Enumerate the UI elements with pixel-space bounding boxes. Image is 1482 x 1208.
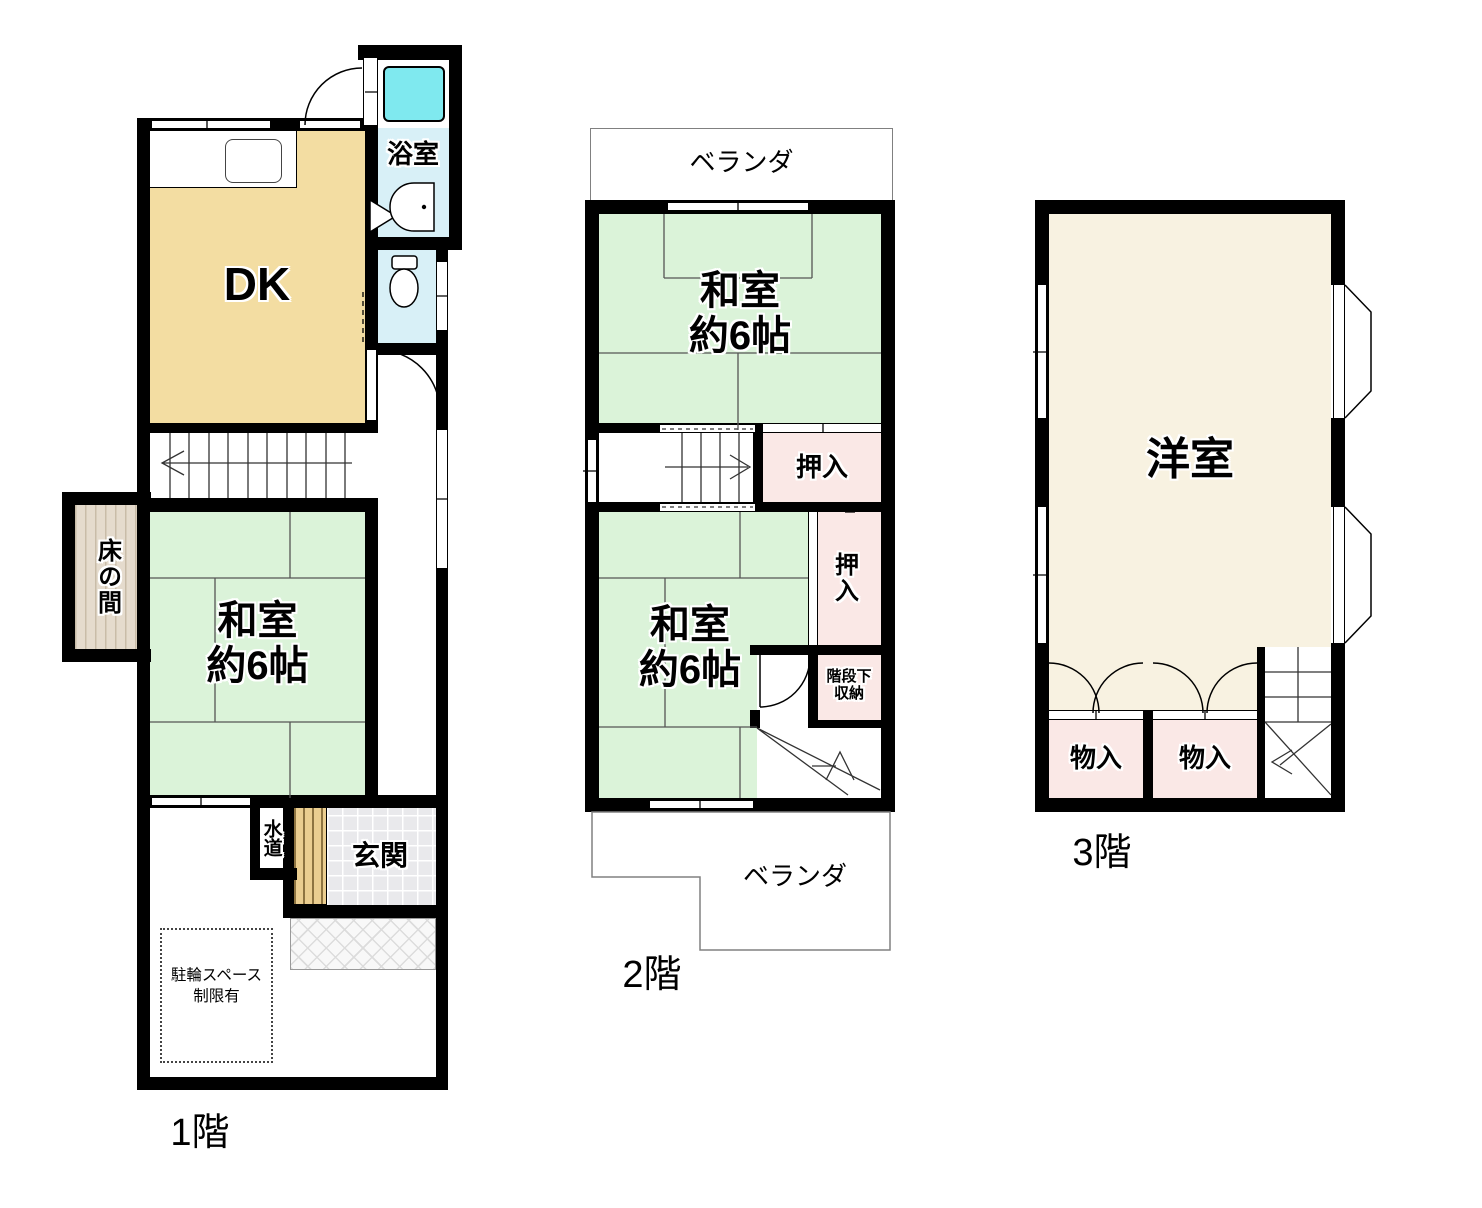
label-monoire-b: 物入 — [1153, 740, 1257, 778]
room-toilet — [378, 250, 436, 345]
wall — [808, 720, 881, 728]
wall — [753, 423, 763, 512]
window — [587, 440, 597, 502]
label-washitsu-1f-line1: 和室 — [218, 599, 298, 644]
wall — [137, 1077, 441, 1090]
label-washitsu-1f: 和室 約6帖 — [150, 588, 365, 700]
closet-door — [1153, 710, 1257, 720]
wall — [1035, 798, 1345, 812]
fusuma-door — [808, 512, 818, 645]
label-suido: 水道 — [257, 810, 285, 866]
label-bicycle-line2: 制限有 — [193, 987, 240, 1008]
wall — [750, 710, 760, 728]
label-washitsu-2f-s-line1: 和室 — [650, 603, 730, 648]
wall — [1331, 643, 1345, 812]
label-bicycle-line1: 駐輪スペース — [171, 966, 262, 987]
label-oshiire-a-text: 押入 — [796, 453, 848, 482]
stair-opening — [660, 425, 755, 432]
label-washitsu-2f-s-line2: 約6帖 — [639, 648, 741, 693]
label-bicycle-space: 駐輪スペース 制限有 — [160, 955, 273, 1019]
entrance-porch — [290, 918, 436, 970]
wall — [365, 512, 378, 808]
label-kaidanshita-line1: 階段下 — [826, 669, 871, 686]
tokonoma-wall — [62, 492, 75, 662]
label-washitsu-2f-south: 和室 約6帖 — [599, 592, 781, 704]
label-veranda-top-text: ベランダ — [689, 148, 793, 177]
label-tokonoma: 床の間 — [88, 513, 124, 641]
entry-step — [293, 800, 327, 905]
floor1-label-text: 1階 — [170, 1112, 229, 1155]
label-bath: 浴室 — [376, 140, 450, 170]
floor3-label: 3階 — [1042, 828, 1162, 878]
wall — [365, 237, 462, 250]
label-washitsu-2f-north: 和室 約6帖 — [599, 258, 881, 370]
label-monoire-a: 物入 — [1049, 740, 1143, 778]
floor2-label: 2階 — [592, 950, 712, 1000]
label-bath-text: 浴室 — [387, 140, 439, 169]
wall — [137, 498, 378, 512]
window — [152, 120, 270, 129]
sliding-door — [152, 797, 250, 806]
bay-window-opening — [1333, 285, 1345, 418]
winder-stairs-2f — [757, 728, 880, 795]
label-kaidanshita: 階段下 収納 — [810, 662, 888, 710]
window — [1037, 507, 1047, 643]
label-washitsu-2f-n-line2: 約6帖 — [689, 314, 791, 359]
bath-door-gap — [367, 350, 376, 420]
wall — [1331, 200, 1345, 285]
wall — [1035, 200, 1345, 214]
label-suido-text: 水道 — [260, 819, 281, 857]
label-washitsu-1f-line2: 約6帖 — [206, 644, 308, 689]
stairs-2f — [662, 429, 753, 507]
label-yoshitsu: 洋室 — [1049, 428, 1331, 492]
floor1-label: 1階 — [140, 1108, 260, 1158]
label-dk-text: DK — [224, 259, 290, 311]
label-genkan: 玄関 — [330, 838, 430, 874]
label-washitsu-2f-n-line1: 和室 — [700, 269, 780, 314]
door-sill — [300, 120, 360, 129]
label-dk: DK — [187, 253, 327, 317]
wall — [881, 200, 895, 812]
label-oshiire-b-text: 押入 — [830, 552, 857, 604]
fusuma-door — [763, 423, 881, 433]
wall — [137, 423, 378, 433]
floorplan-canvas: DK 浴室 床の間 和室 約6帖 水道 玄関 駐輪スペース 制限有 1階 ベラン… — [0, 0, 1482, 1208]
bathtub — [383, 66, 445, 122]
label-oshiire-b: 押入 — [826, 528, 860, 628]
label-monoire-a-text: 物入 — [1070, 744, 1122, 773]
closet-door — [1049, 710, 1143, 720]
entry-door-leaf — [363, 58, 378, 125]
label-genkan-text: 玄関 — [352, 840, 408, 871]
label-tokonoma-text: 床の間 — [93, 538, 120, 616]
window — [650, 800, 753, 809]
stairs-3f-area — [1265, 647, 1331, 798]
bay-windows-3f — [1345, 285, 1371, 643]
wall — [1257, 647, 1265, 812]
floor2-label-text: 2階 — [622, 954, 681, 997]
kitchen-sink — [225, 139, 282, 183]
tokonoma-wall — [62, 649, 151, 662]
window — [1037, 285, 1047, 418]
floor3-label-text: 3階 — [1072, 832, 1131, 875]
tokonoma-wall — [62, 492, 151, 505]
bay-window-opening — [1333, 507, 1345, 643]
wall — [1143, 710, 1153, 798]
wall — [137, 118, 150, 1090]
label-monoire-b-text: 物入 — [1179, 744, 1231, 773]
window — [436, 430, 448, 568]
wall — [436, 250, 448, 1090]
wall — [283, 905, 448, 918]
window — [436, 262, 448, 330]
wall — [1331, 418, 1345, 507]
label-kaidanshita-line2: 収納 — [834, 686, 864, 703]
stair-opening — [660, 504, 755, 511]
wall — [449, 45, 462, 250]
label-yoshitsu-text: 洋室 — [1146, 435, 1234, 484]
window — [668, 202, 808, 211]
label-veranda-bottom-2f: ベランダ — [710, 858, 880, 896]
label-oshiire-a: 押入 — [763, 452, 881, 484]
label-veranda-top-2f: ベランダ — [590, 144, 893, 182]
label-veranda-bottom-text: ベランダ — [743, 862, 847, 891]
stairs-1f — [162, 433, 352, 498]
